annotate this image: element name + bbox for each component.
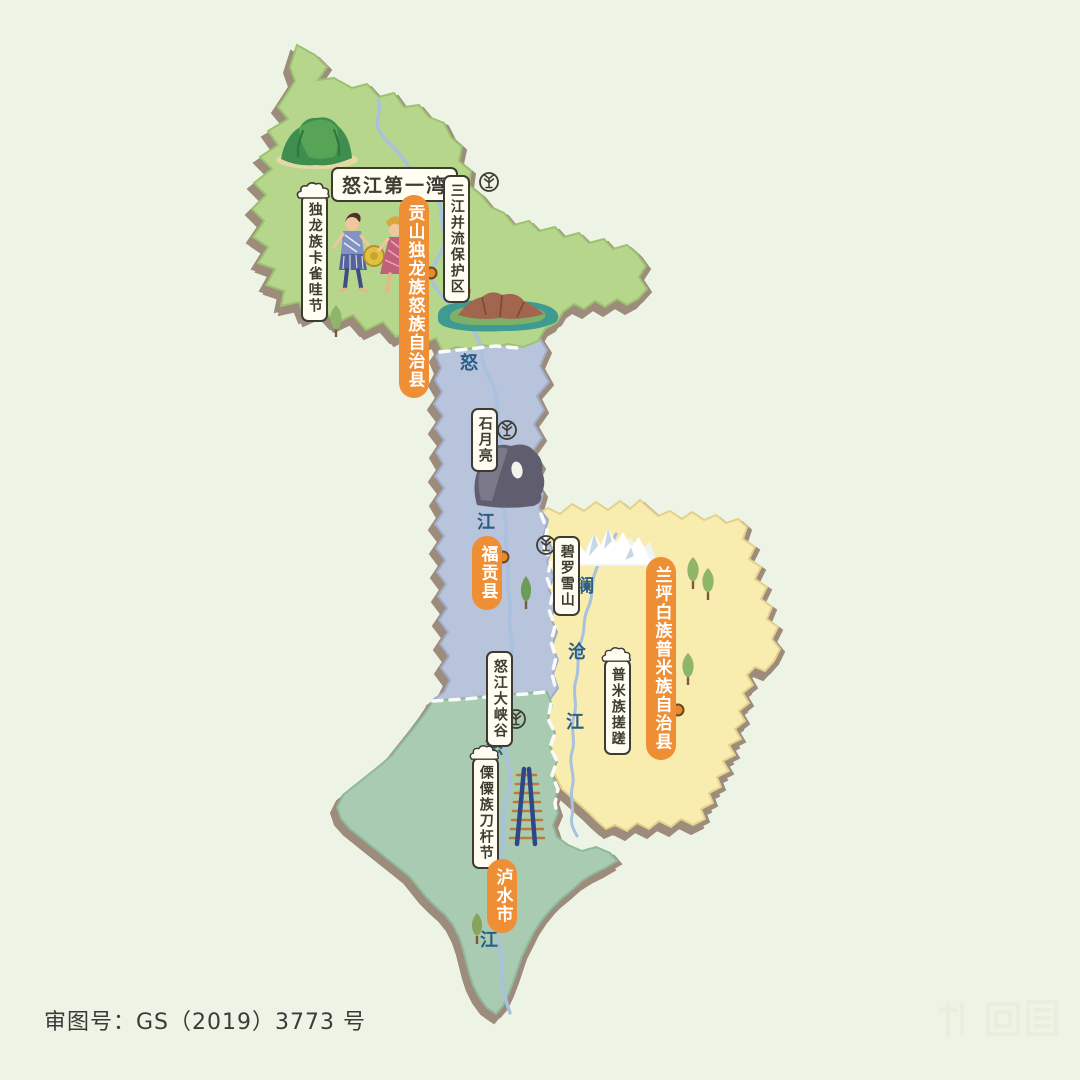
poi-label-pumi-cuocuo-dance: 普米族搓蹉	[604, 659, 631, 755]
map-approval-number: 审图号：GS（2019）3773 号	[44, 1004, 366, 1036]
poi-label-text: 普米族搓蹉	[610, 667, 626, 747]
river-label-lancang: 沧	[568, 638, 586, 664]
poi-label-text: 独龙族卡雀哇节	[307, 202, 323, 314]
map-canvas: 怒江第一湾 三江并流保护区 独龙族卡雀哇节 石月亮 碧罗雪山 怒江大峡谷 普米族…	[0, 0, 1080, 1080]
cloud-icon	[295, 182, 333, 200]
prefecture-map	[0, 0, 1080, 1080]
poi-label-text: 傈僳族刀杆节	[478, 765, 494, 861]
poi-label-dulong-kaquewa-festival: 独龙族卡雀哇节	[301, 194, 328, 322]
scenic-spot-icon	[480, 173, 498, 191]
river-label-nu: 江	[477, 508, 495, 534]
poi-label-lisu-daoganjie-festival: 傈僳族刀杆节	[472, 757, 499, 869]
county-label-lushui: 泸水市	[487, 859, 517, 933]
poi-label-biluo-snow-mountain: 碧罗雪山	[553, 536, 580, 616]
poi-label-nujiang-grand-canyon: 怒江大峡谷	[486, 651, 513, 747]
poi-label-stone-moon: 石月亮	[471, 408, 498, 472]
poi-label-three-parallel-rivers-reserve: 三江并流保护区	[443, 175, 470, 303]
cloud-icon	[600, 647, 634, 663]
poi-label-nujiang-first-bend: 怒江第一湾	[331, 167, 458, 202]
cloud-icon	[468, 745, 502, 761]
county-label-gongshan: 贡山独龙族怒族自治县	[399, 195, 429, 398]
county-label-lanping: 兰坪白族普米族自治县	[646, 557, 676, 760]
river-label-lancang: 江	[566, 708, 584, 734]
watermark	[932, 992, 1062, 1052]
river-label-nu: 怒	[460, 349, 478, 375]
county-label-fugong: 福贡县	[472, 536, 502, 610]
